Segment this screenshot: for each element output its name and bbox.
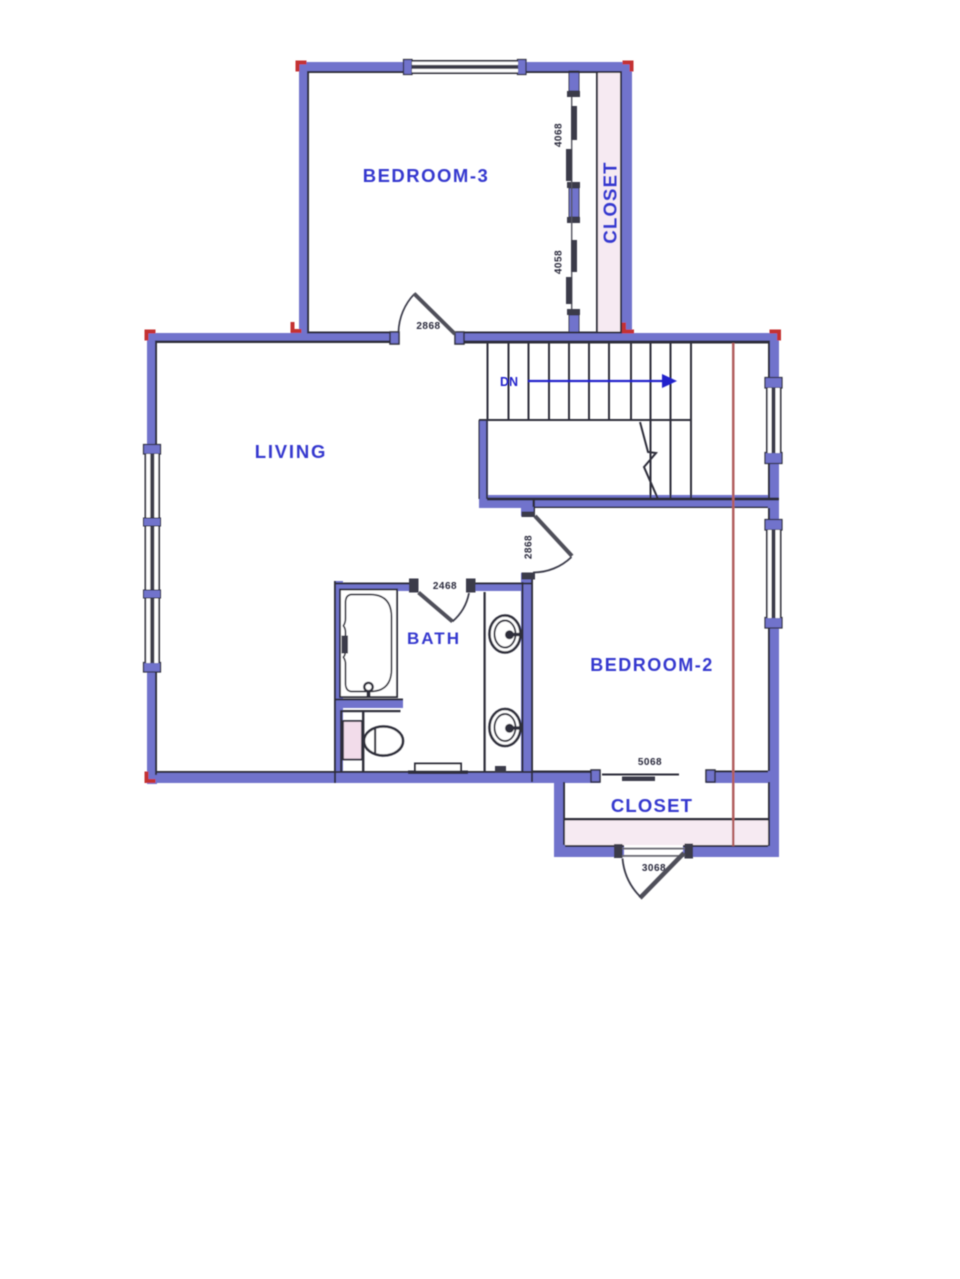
- svg-text:LIVING: LIVING: [255, 441, 327, 462]
- svg-text:DN: DN: [500, 375, 518, 389]
- svg-text:CLOSET: CLOSET: [600, 161, 621, 243]
- svg-text:4068: 4068: [554, 123, 565, 147]
- svg-text:BEDROOM-3: BEDROOM-3: [363, 165, 490, 186]
- svg-text:2868: 2868: [524, 535, 535, 559]
- svg-text:BATH: BATH: [407, 629, 461, 648]
- svg-text:CLOSET: CLOSET: [611, 795, 693, 816]
- svg-text:3068: 3068: [642, 863, 666, 874]
- svg-text:4058: 4058: [554, 250, 565, 274]
- svg-text:2868: 2868: [416, 321, 440, 332]
- svg-text:5068: 5068: [638, 757, 662, 768]
- svg-text:BEDROOM-2: BEDROOM-2: [590, 655, 714, 675]
- svg-text:2468: 2468: [433, 581, 457, 592]
